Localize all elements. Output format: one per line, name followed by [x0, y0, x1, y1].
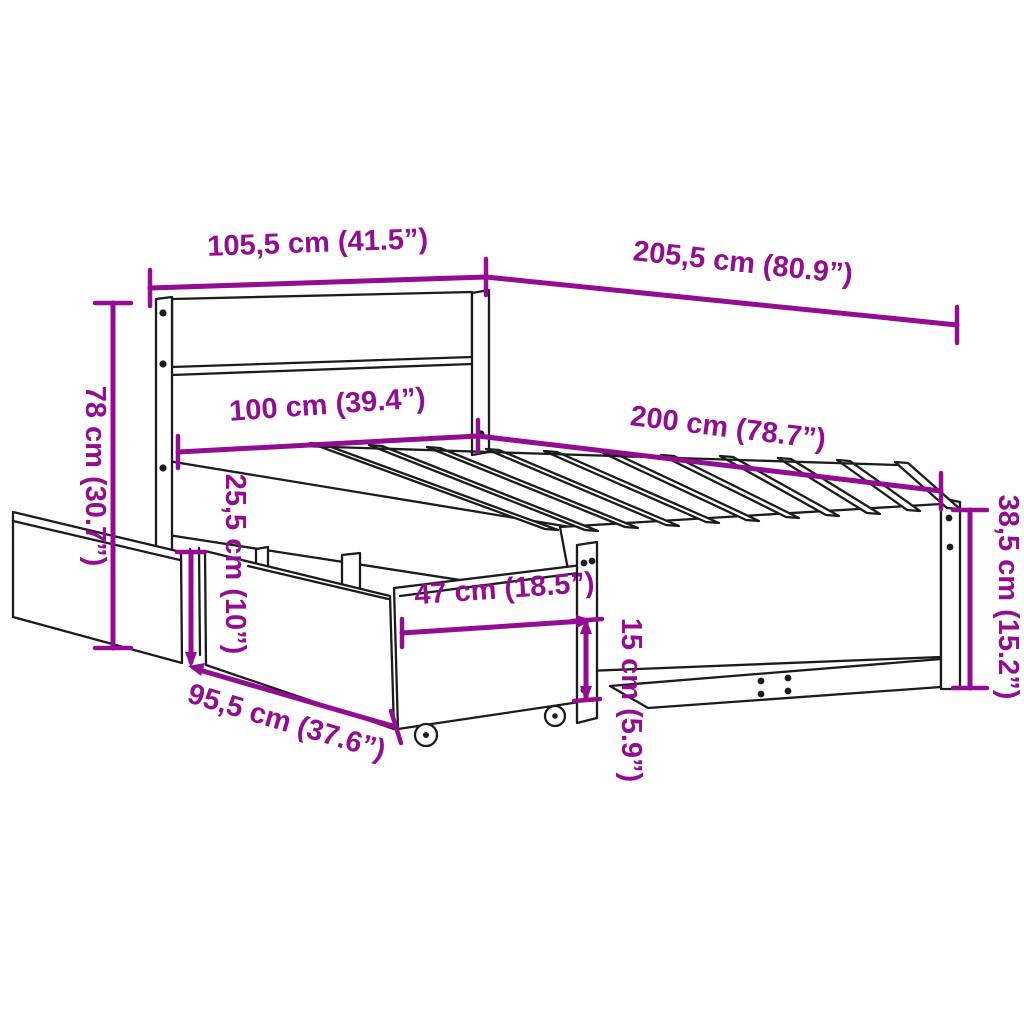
headboard-panel [172, 292, 472, 367]
caster-hub [552, 713, 558, 719]
dimension-label-total-length: 205,5 cm (80.9”) [631, 235, 854, 291]
foot-post [941, 498, 960, 689]
caster-wheel [415, 724, 437, 746]
drawer-wall-edge [199, 548, 200, 655]
screw-dot [159, 464, 166, 471]
dimension-label-under-bed-clearance: 15 cm (5.9”) [615, 618, 647, 782]
screw-dot [785, 675, 792, 682]
screw-dot [589, 558, 596, 565]
dimension-footboard-height: 38,5 cm (15.2”) [953, 495, 1024, 700]
diagram-canvas: 105,5 cm (41.5”) 205,5 cm (80.9”) 100 cm… [0, 0, 1024, 1024]
screw-dot [581, 560, 588, 567]
bed-drawing [13, 290, 960, 746]
dimension-label-headboard-height: 78 cm (30.7”) [79, 386, 111, 567]
screw-dot [946, 515, 953, 522]
caster-hub [423, 732, 429, 738]
caster-wheel [545, 706, 565, 726]
screw-dot [159, 360, 166, 367]
dimension-label-headboard-width: 105,5 cm (41.5”) [207, 223, 429, 263]
bed-dimension-diagram: 105,5 cm (41.5”) 205,5 cm (80.9”) 100 cm… [0, 0, 1024, 1024]
dimension-label-footboard-height: 38,5 cm (15.2”) [992, 495, 1024, 700]
dimension-line [150, 277, 486, 288]
headboard-left-post [156, 297, 172, 560]
dimension-label-mattress-width: 100 cm (39.4”) [228, 382, 426, 428]
screw-dot [758, 691, 765, 698]
screw-dot [947, 544, 954, 551]
dimension-mattress-width: 100 cm (39.4”) [178, 382, 478, 468]
dimension-total-length: 205,5 cm (80.9”) [486, 235, 957, 343]
screw-dot [785, 688, 792, 695]
dimension-label-mattress-length: 200 cm (78.7”) [629, 400, 828, 456]
screw-dot [758, 678, 765, 685]
screw-dot [159, 309, 166, 316]
headboard-right-post [472, 290, 489, 455]
slat [778, 458, 880, 514]
dimension-label-drawer-height: 25,5 cm (10”) [219, 474, 251, 655]
dimension-line [486, 277, 957, 325]
